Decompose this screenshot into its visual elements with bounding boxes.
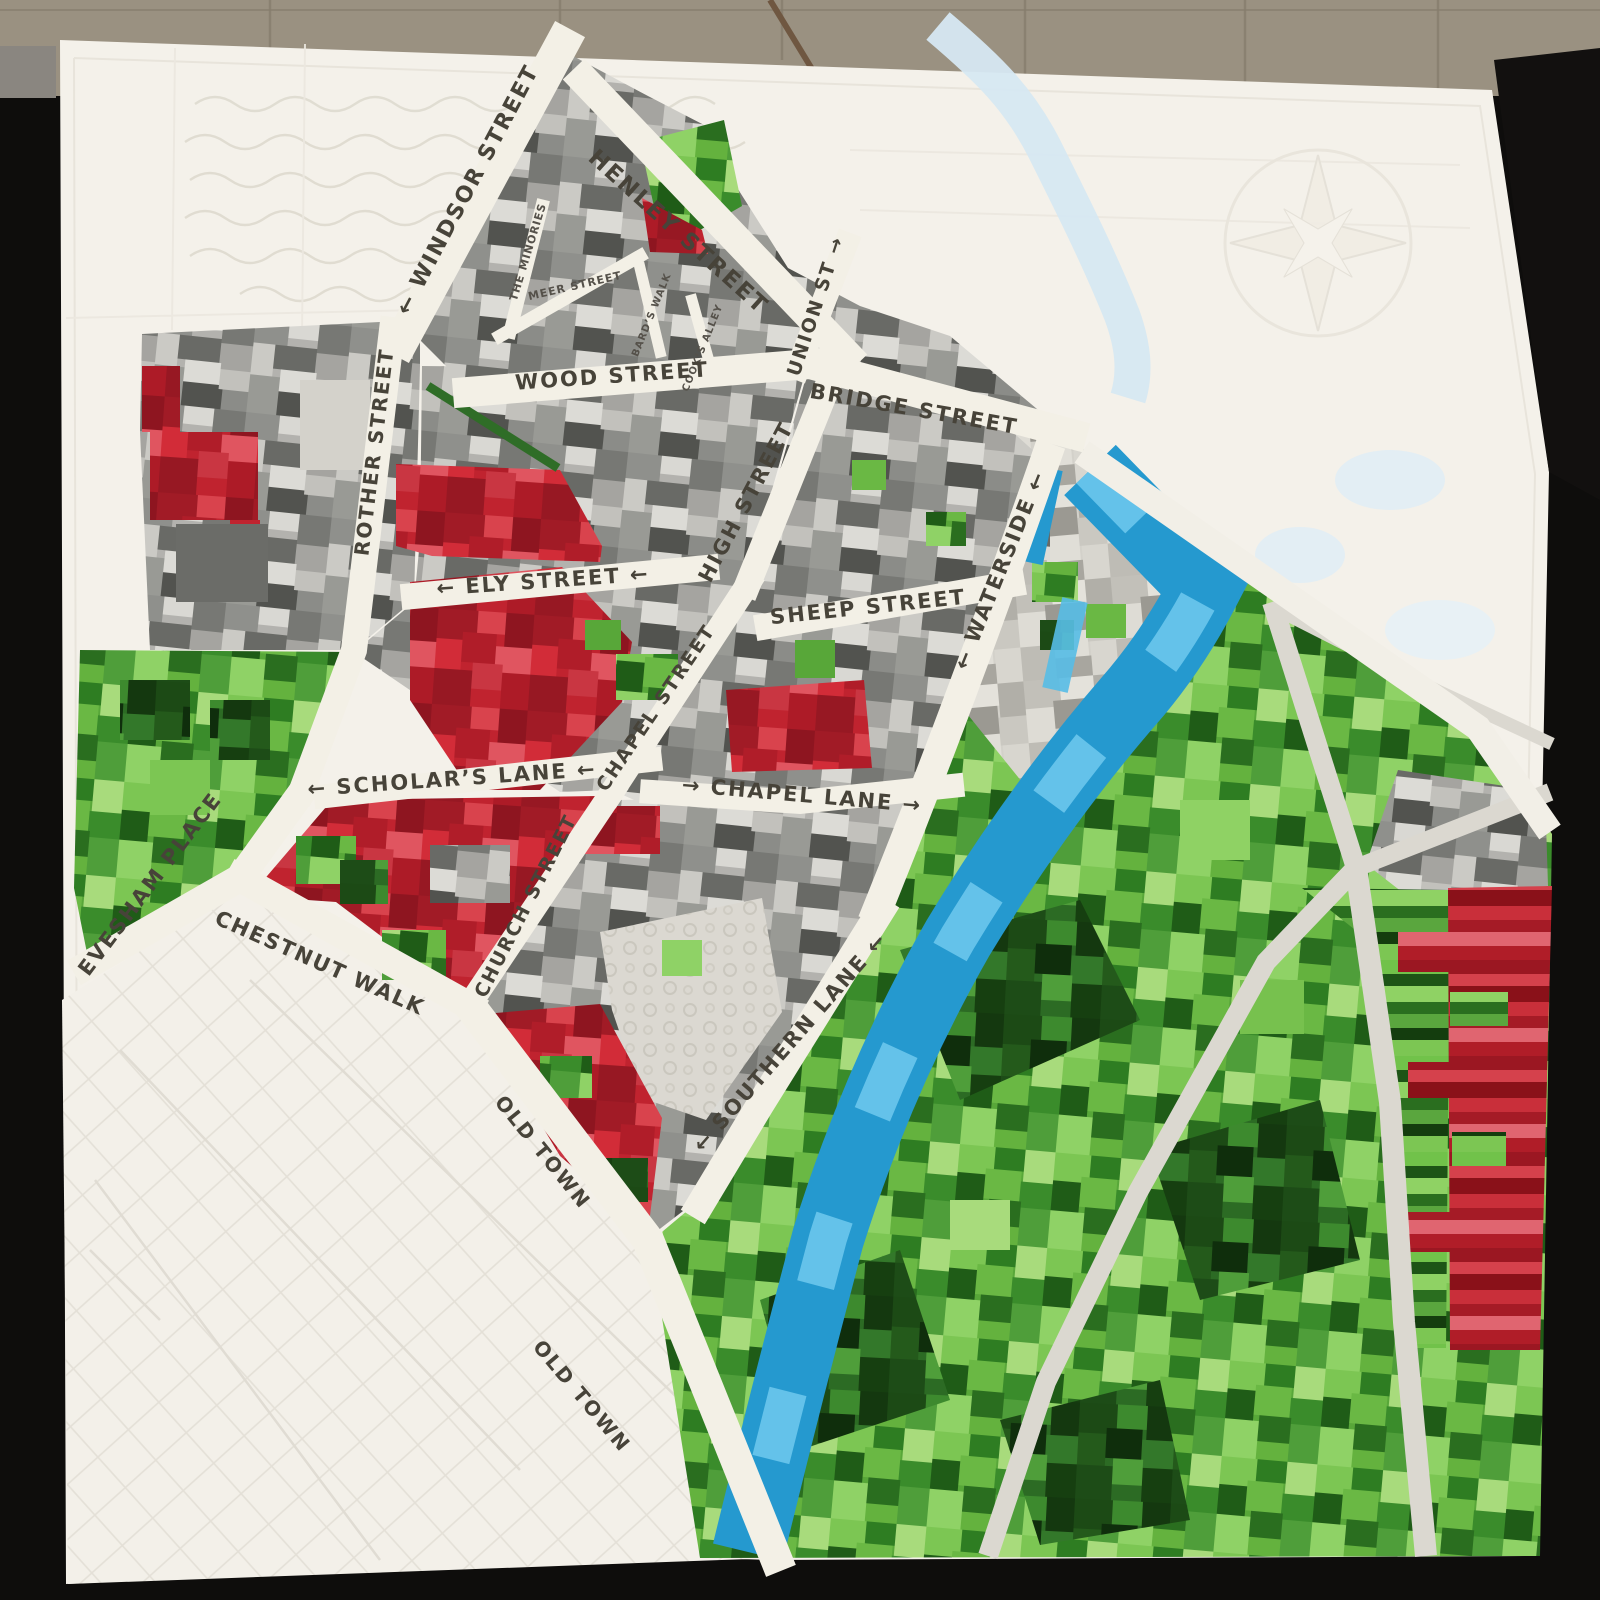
light-gray-patch (300, 380, 370, 470)
green-patch (210, 700, 270, 760)
green-patch (926, 512, 966, 546)
quilt: ← WINDSOR STREET HENLEY STREET THE MINOR… (60, 26, 1552, 1584)
red-patch (150, 432, 258, 520)
quilted-compass-star (1225, 150, 1411, 336)
red-patch (142, 366, 180, 432)
green-patch (120, 680, 190, 740)
green-strip-tooth (1452, 1132, 1506, 1166)
photo-of-quilt: ← WINDSOR STREET HENLEY STREET THE MINOR… (0, 0, 1600, 1600)
metal-rail (0, 46, 56, 98)
red-patch-east (726, 680, 872, 772)
red-strip-tooth (1408, 1062, 1452, 1098)
gray-patch (430, 845, 510, 903)
green-field (1180, 800, 1250, 860)
green-patch (852, 460, 886, 490)
green-patch (662, 940, 702, 976)
green-patch (585, 620, 621, 650)
dark-gray-patch (176, 524, 268, 602)
green-square (1086, 604, 1126, 638)
red-strip-tooth (1398, 932, 1452, 972)
green-strip-tooth (1450, 992, 1508, 1026)
green-field (950, 1200, 1010, 1250)
quilt-map-scene: ← WINDSOR STREET HENLEY STREET THE MINOR… (0, 0, 1600, 1600)
green-patch (795, 640, 835, 678)
green-patch (340, 860, 388, 904)
green-square (1032, 562, 1078, 602)
zone-red-strips (1448, 886, 1552, 1350)
